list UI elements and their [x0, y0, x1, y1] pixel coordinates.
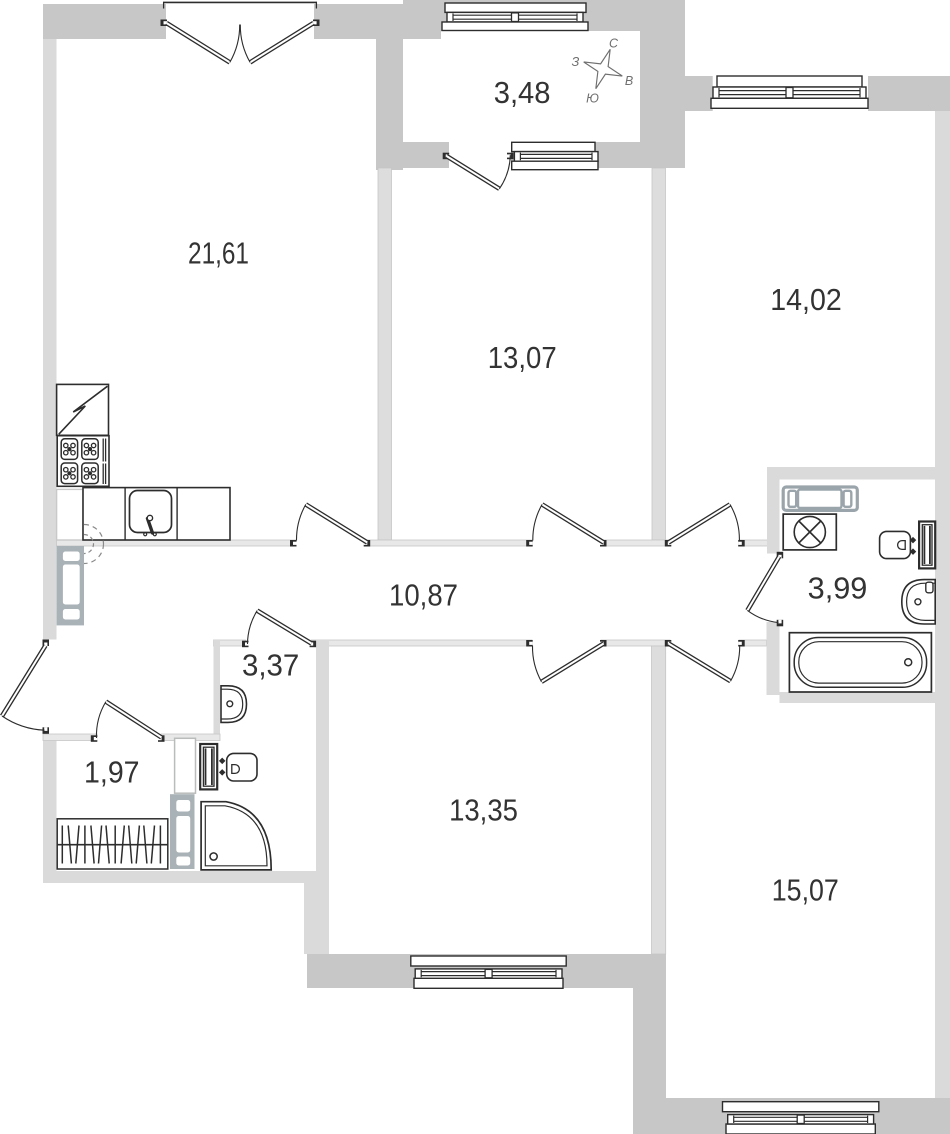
svg-text:13,35: 13,35	[449, 793, 518, 828]
svg-text:10,87: 10,87	[389, 578, 458, 613]
svg-text:С: С	[609, 37, 619, 51]
svg-text:13,07: 13,07	[488, 340, 557, 375]
svg-text:21,61: 21,61	[188, 236, 249, 270]
svg-text:14,02: 14,02	[770, 283, 841, 317]
svg-text:В: В	[625, 74, 633, 88]
svg-text:З: З	[572, 55, 580, 69]
svg-text:1,97: 1,97	[84, 755, 139, 789]
svg-text:Ю: Ю	[586, 92, 599, 106]
svg-text:3,48: 3,48	[494, 76, 551, 110]
svg-text:15,07: 15,07	[772, 874, 839, 908]
svg-text:3,99: 3,99	[808, 570, 868, 605]
svg-text:3,37: 3,37	[242, 649, 299, 683]
